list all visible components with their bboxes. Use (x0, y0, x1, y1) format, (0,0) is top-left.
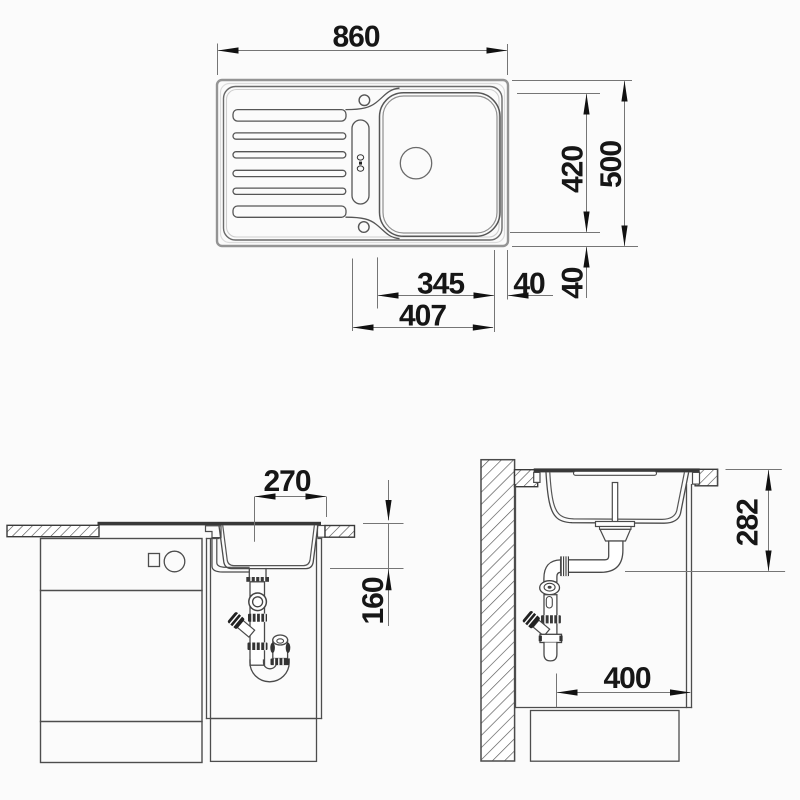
svg-text:345: 345 (417, 268, 464, 301)
svg-text:282: 282 (732, 499, 765, 546)
svg-text:500: 500 (595, 141, 628, 188)
svg-text:400: 400 (603, 662, 650, 695)
svg-text:270: 270 (263, 465, 310, 498)
svg-text:407: 407 (399, 300, 446, 333)
svg-text:40: 40 (513, 268, 545, 301)
svg-text:40: 40 (557, 267, 590, 299)
svg-text:160: 160 (357, 577, 390, 624)
svg-text:420: 420 (557, 146, 590, 193)
svg-text:860: 860 (332, 20, 379, 53)
